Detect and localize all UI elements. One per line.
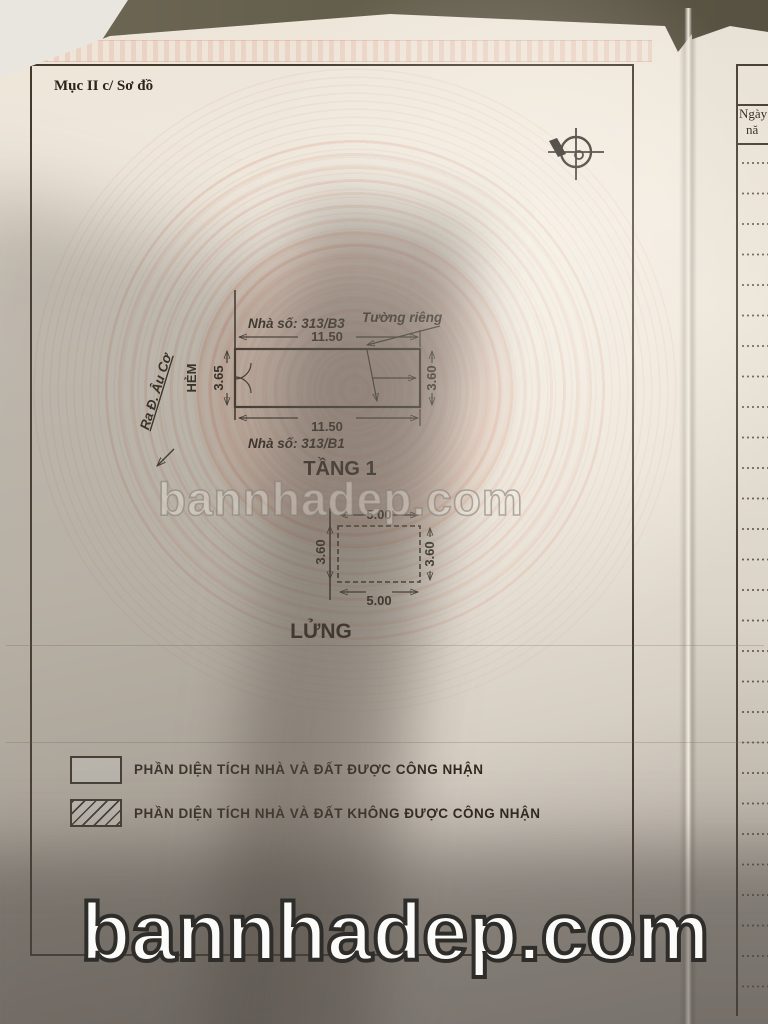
- adjacent-table-border: [736, 64, 738, 1016]
- compass-needle-icon: [549, 138, 566, 157]
- mezz-dim-depth-right: 3.60: [422, 541, 437, 566]
- decorative-border-band: [32, 40, 652, 62]
- adjacent-table-line: [736, 143, 768, 145]
- wall-leader-arrow-bottom: [367, 350, 377, 401]
- legend-swatch-recognized: [70, 756, 122, 784]
- house-number-bottom-label: Nhà số: 313/B1: [248, 436, 345, 451]
- dim-depth-left: 3.65: [211, 365, 226, 390]
- house-number-top-label: Nhà số: 313/B3: [248, 316, 345, 331]
- mezz-dim-width-bottom: 5.00: [366, 593, 391, 608]
- mezz-dim-depth-left: 3.60: [313, 539, 328, 564]
- adjacent-page: Ngày t nă: [690, 0, 768, 1024]
- floor1-plan-diagram: 11.50 11.50 3.65 3.60 Nhà số: 313/B3 Tườ…: [130, 283, 470, 488]
- page-fold-crease: [679, 8, 697, 1024]
- date-column-header-line2: nă: [739, 122, 768, 138]
- private-wall-label: Tường riêng: [362, 310, 443, 325]
- horizontal-crease: [6, 645, 764, 646]
- dim-width-top: 11.50: [311, 329, 343, 344]
- mezzanine-outline-dashed: [338, 526, 420, 582]
- legend-swatch-not-recognized: [70, 799, 122, 827]
- street-direction-label: Ra Đ. Âu Cơ: [137, 350, 175, 432]
- legend-label-not-recognized: PHẦN DIỆN TÍCH NHÀ VÀ ĐẤT KHÔNG ĐƯỢC CÔN…: [134, 806, 664, 821]
- section-label: Mục II c/ Sơ đồ: [54, 78, 153, 95]
- horizontal-crease: [6, 742, 764, 743]
- date-column-header-line1: Ngày t: [739, 106, 768, 122]
- adjacent-table-line: [736, 64, 768, 66]
- dim-width-bottom: 11.50: [311, 419, 343, 434]
- dotted-entry-rows: [742, 162, 768, 1014]
- watermark-bottom: bannhadep.com: [50, 886, 740, 980]
- date-column-header: Ngày t nă: [739, 106, 768, 138]
- wall-leader-arrow-top: [367, 326, 440, 345]
- mezzanine-title: LỬNG: [290, 619, 352, 643]
- legend-label-recognized: PHẦN DIỆN TÍCH NHÀ VÀ ĐẤT ĐƯỢC CÔNG NHẬN: [134, 762, 664, 777]
- alley-label: HẺM: [184, 364, 199, 393]
- street-direction-arrow: [157, 449, 174, 466]
- watermark-center: bannhadep.com: [158, 472, 618, 526]
- north-compass-icon: [540, 126, 612, 188]
- photo-of-certificate: Mục II c/ Sơ đồ: [0, 0, 768, 1024]
- dim-depth-right: 3.60: [424, 365, 439, 390]
